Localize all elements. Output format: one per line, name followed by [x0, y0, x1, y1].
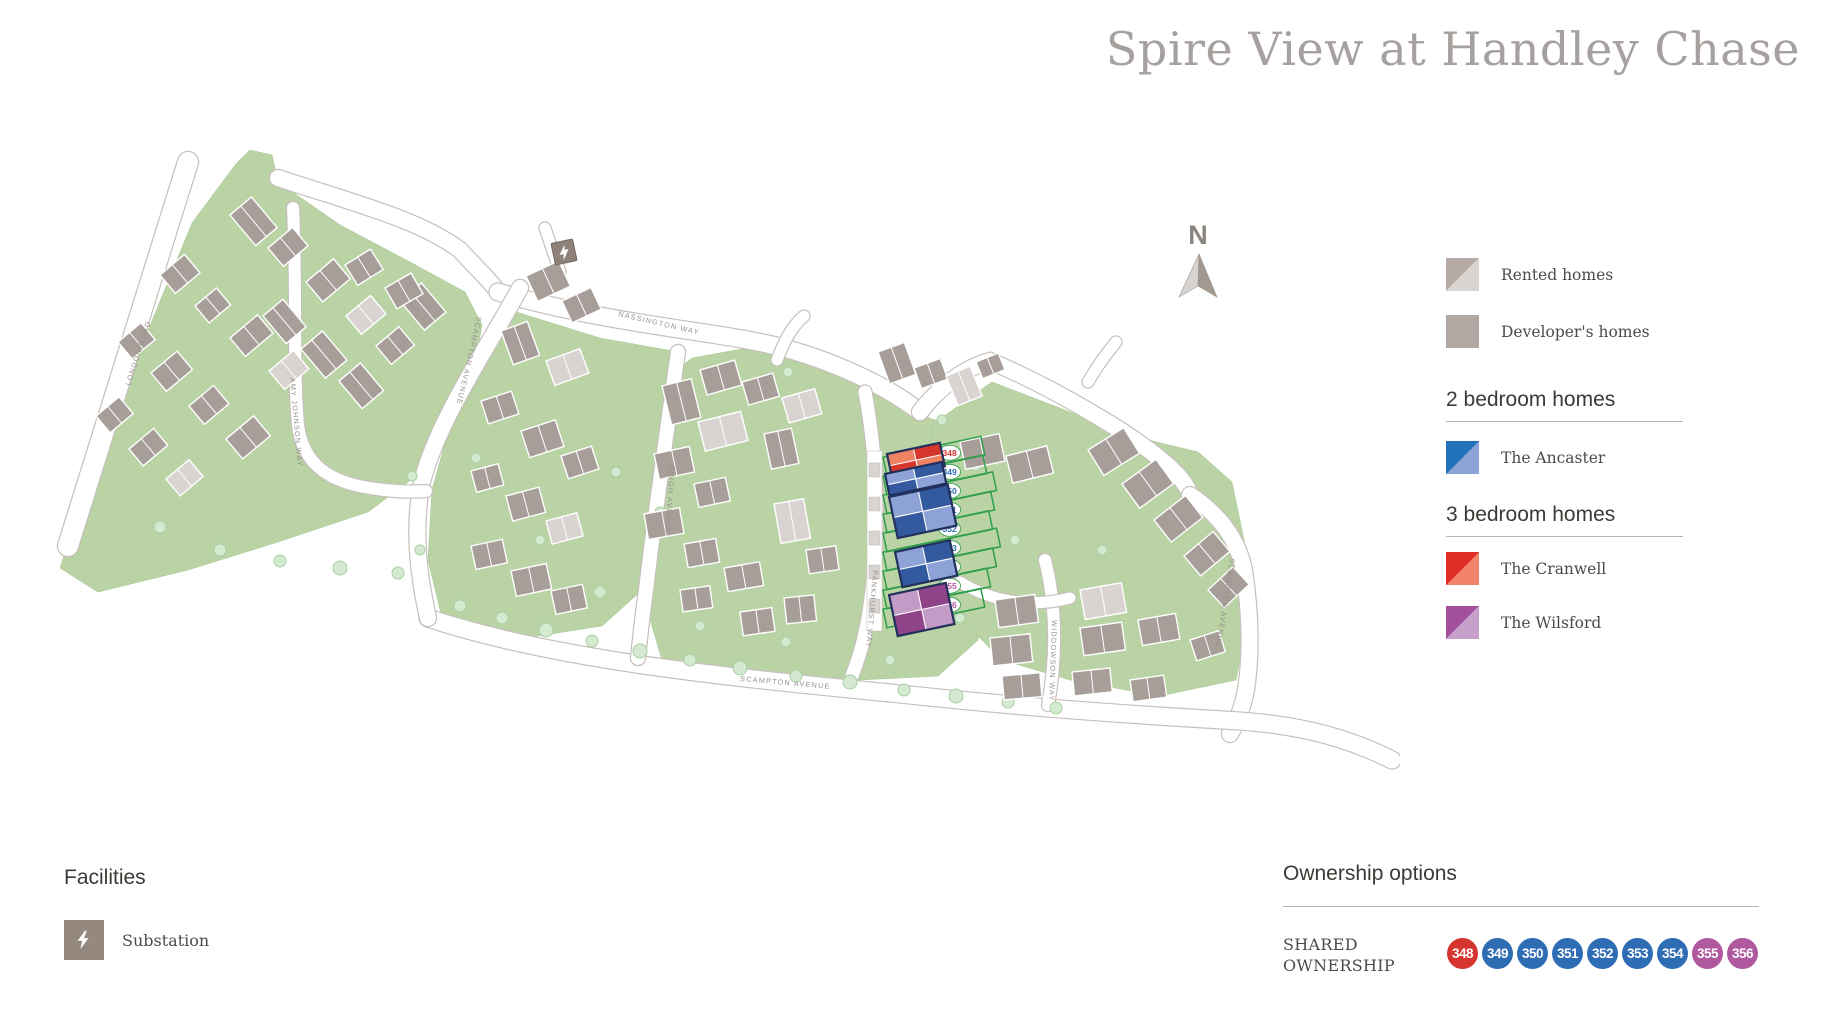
- plot-number-label[interactable]: 348: [943, 448, 957, 458]
- shared-ownership-plot-circles: 348349350351352353354355356: [1447, 938, 1758, 969]
- north-arrow: N: [1179, 220, 1217, 297]
- tree-icon: [407, 471, 417, 481]
- house-block: [1130, 675, 1167, 702]
- house-block: [684, 538, 720, 567]
- garage-block: [869, 497, 880, 511]
- tree-icon: [843, 675, 857, 689]
- plot-circle-353[interactable]: 353: [1622, 938, 1653, 969]
- ancaster-swatch-icon: [1446, 441, 1479, 474]
- legend-item-label: The Ancaster: [1501, 449, 1605, 467]
- tree-icon: [781, 637, 791, 647]
- developer-homes-swatch-icon: [1446, 315, 1479, 348]
- tree-icon: [1050, 702, 1062, 714]
- plot-circle-352[interactable]: 352: [1587, 938, 1618, 969]
- shared-ownership-label: SHARED OWNERSHIP: [1283, 934, 1395, 976]
- tree-icon: [684, 654, 696, 666]
- tree-icon: [695, 621, 705, 631]
- tree-icon: [898, 684, 910, 696]
- page-title: Spire View at Handley Chase: [1106, 22, 1800, 76]
- rented-homes-swatch-icon: [1446, 258, 1479, 291]
- tree-icon: [392, 567, 404, 579]
- house-block: [774, 499, 810, 544]
- tree-icon: [885, 655, 895, 665]
- legend-item-ancaster: The Ancaster: [1446, 441, 1605, 474]
- house-block: [1080, 622, 1125, 656]
- tree-icon: [333, 561, 347, 575]
- legend-item-label: Developer's homes: [1501, 323, 1650, 341]
- tree-icon: [1097, 545, 1107, 555]
- shared-ownership-line1: SHARED: [1283, 934, 1395, 955]
- map-substation-icon: [551, 239, 577, 265]
- divider: [1283, 906, 1759, 907]
- plot-circle-349[interactable]: 349: [1482, 938, 1513, 969]
- tree-icon: [535, 535, 545, 545]
- plot-circle-348[interactable]: 348: [1447, 938, 1478, 969]
- house-block: [806, 546, 839, 574]
- site-plan-map: 348349350351352353354355356 LONDON ROADA…: [40, 120, 1400, 790]
- three-bedroom-heading: 3 bedroom homes: [1446, 503, 1615, 527]
- garage-block: [869, 531, 880, 545]
- plot-circle-354[interactable]: 354: [1657, 938, 1688, 969]
- plot-circle-351[interactable]: 351: [1552, 938, 1583, 969]
- site-plan-page: Spire View at Handley Chase 348349350351…: [0, 0, 1822, 1024]
- tree-icon: [586, 635, 598, 647]
- house-block: [995, 594, 1039, 627]
- tree-icon: [274, 555, 286, 567]
- road: [1088, 342, 1116, 382]
- tree-icon: [955, 613, 965, 623]
- tree-icon: [937, 415, 947, 425]
- house-block: [990, 634, 1033, 666]
- tree-icon: [733, 661, 747, 675]
- legend-item-label: The Cranwell: [1501, 560, 1606, 578]
- tree-icon: [415, 545, 425, 555]
- house-block: [1072, 668, 1112, 696]
- plot-circle-355[interactable]: 355: [1692, 938, 1723, 969]
- facilities-substation-row: Substation: [64, 920, 209, 960]
- facilities-heading: Facilities: [64, 866, 146, 890]
- substation-label: Substation: [122, 931, 209, 950]
- legend-item-developer: Developer's homes: [1446, 315, 1650, 348]
- legend-item-wilsford: The Wilsford: [1446, 606, 1601, 639]
- house-block: [1080, 583, 1127, 620]
- north-arrow-right-face: [1198, 254, 1217, 297]
- tree-icon: [539, 623, 553, 637]
- tree-icon: [496, 612, 508, 624]
- house-block: [1138, 613, 1180, 645]
- green-parcels: [60, 150, 1248, 696]
- ownership-options-heading: Ownership options: [1283, 862, 1457, 886]
- divider: [1446, 536, 1683, 537]
- legend-item-rented: Rented homes: [1446, 258, 1613, 291]
- house-block: [740, 608, 775, 636]
- north-arrow-left-face: [1179, 254, 1199, 297]
- shared-ownership-line2: OWNERSHIP: [1283, 955, 1395, 976]
- tree-icon: [154, 521, 166, 533]
- divider: [1446, 421, 1683, 422]
- tree-icon: [783, 367, 793, 377]
- tree-icon: [214, 544, 226, 556]
- legend-item-label: The Wilsford: [1501, 614, 1601, 632]
- cranwell-swatch-icon: [1446, 552, 1479, 585]
- north-label: N: [1188, 220, 1208, 250]
- legend-item-label: Rented homes: [1501, 266, 1613, 284]
- two-bedroom-heading: 2 bedroom homes: [1446, 388, 1615, 412]
- tree-icon: [454, 600, 466, 612]
- tree-icon: [611, 467, 621, 477]
- tree-icon: [633, 644, 647, 658]
- tree-icon: [1010, 535, 1020, 545]
- house-block: [680, 586, 713, 612]
- tree-icon: [949, 689, 963, 703]
- garage-block: [869, 463, 880, 477]
- plot-circle-356[interactable]: 356: [1727, 938, 1758, 969]
- tree-icon: [471, 453, 481, 463]
- plot-circle-350[interactable]: 350: [1517, 938, 1548, 969]
- wilsford-swatch-icon: [1446, 606, 1479, 639]
- legend-item-cranwell: The Cranwell: [1446, 552, 1606, 585]
- substation-icon: [64, 920, 104, 960]
- tree-icon: [594, 586, 606, 598]
- house-block: [1002, 673, 1042, 700]
- house-block: [784, 595, 817, 624]
